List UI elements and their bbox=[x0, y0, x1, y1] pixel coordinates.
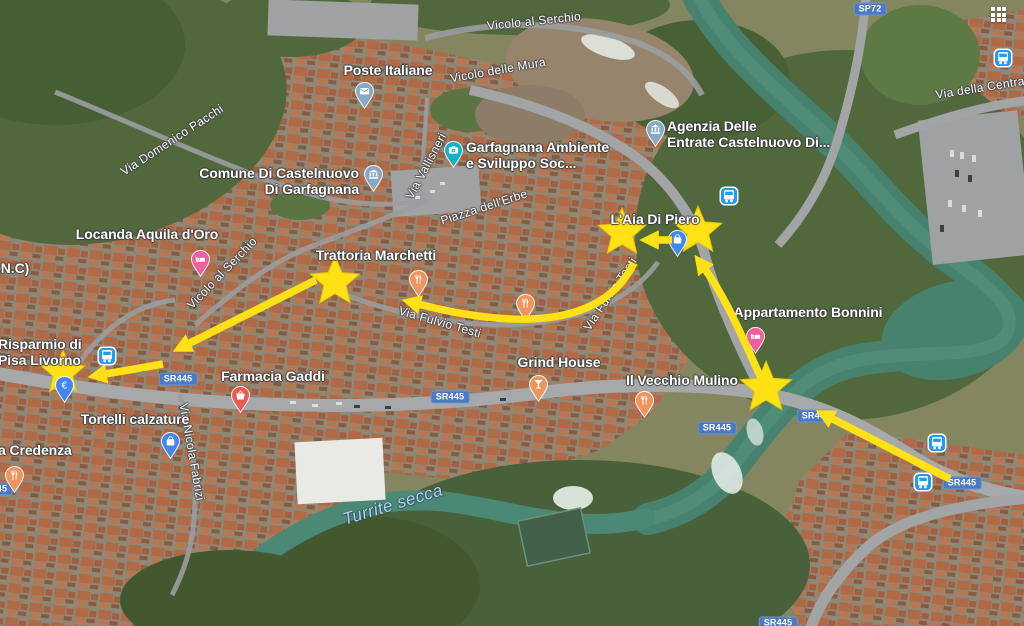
bus-glyph bbox=[995, 50, 1011, 66]
bus-glyph bbox=[929, 435, 945, 451]
satellite-map[interactable]: € Vicolo al SerchioVicolo delle MuraVia … bbox=[0, 0, 1024, 626]
bus-glyph bbox=[721, 188, 737, 204]
bus-stop-icon[interactable] bbox=[995, 50, 1011, 66]
bus-stop-icon[interactable] bbox=[915, 474, 931, 490]
bus-stop-icon[interactable] bbox=[929, 435, 945, 451]
bus-stop-icon[interactable] bbox=[721, 188, 737, 204]
apps-grid-icon[interactable] bbox=[991, 7, 1006, 22]
bus-glyph bbox=[915, 474, 931, 490]
bus-stop-icon[interactable] bbox=[99, 348, 115, 364]
bus-stops-layer bbox=[0, 0, 1024, 626]
bus-glyph bbox=[99, 348, 115, 364]
